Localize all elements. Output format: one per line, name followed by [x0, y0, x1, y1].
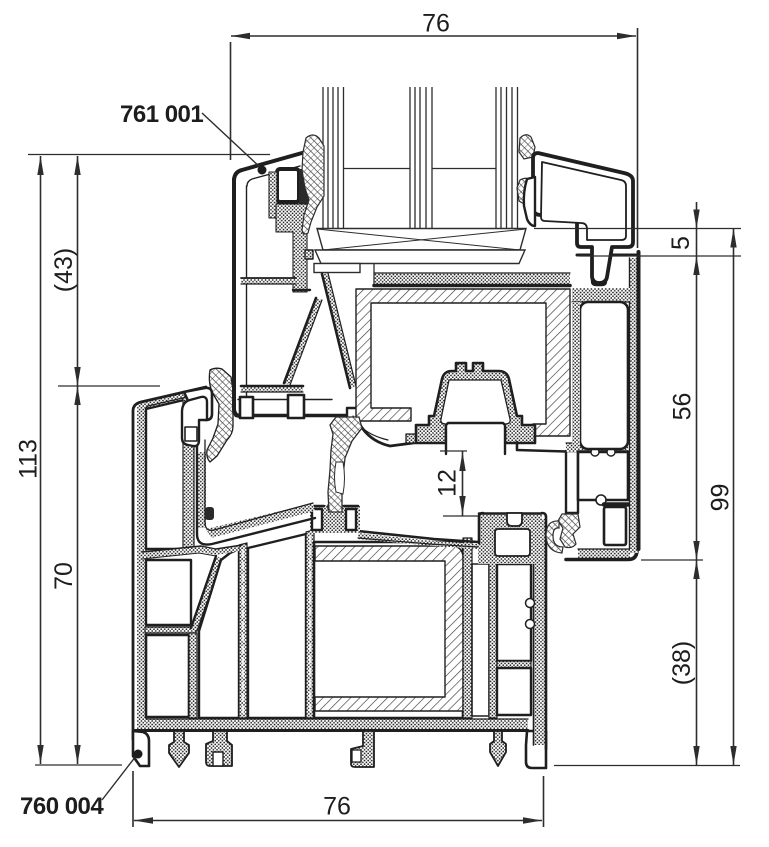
- svg-text:5: 5: [667, 236, 695, 250]
- svg-text:(38): (38): [668, 641, 696, 685]
- svg-text:(43): (43): [50, 248, 78, 292]
- svg-text:761 001: 761 001: [120, 101, 203, 128]
- svg-text:76: 76: [422, 10, 450, 38]
- svg-text:12: 12: [434, 469, 462, 497]
- svg-text:760 004: 760 004: [20, 793, 104, 820]
- svg-text:56: 56: [669, 393, 697, 421]
- svg-text:113: 113: [15, 439, 43, 479]
- svg-text:70: 70: [50, 562, 78, 590]
- svg-text:76: 76: [323, 793, 351, 821]
- svg-text:99: 99: [707, 484, 735, 512]
